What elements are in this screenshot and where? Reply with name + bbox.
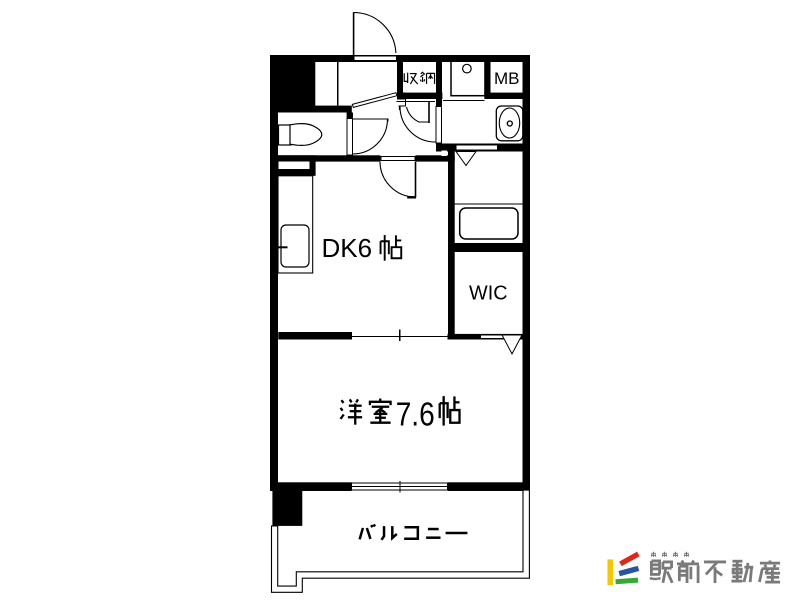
svg-text:7.6: 7.6	[396, 395, 435, 432]
svg-text:MB: MB	[494, 69, 520, 88]
svg-text:DK6: DK6	[322, 233, 373, 263]
svg-text:WIC: WIC	[469, 282, 508, 305]
